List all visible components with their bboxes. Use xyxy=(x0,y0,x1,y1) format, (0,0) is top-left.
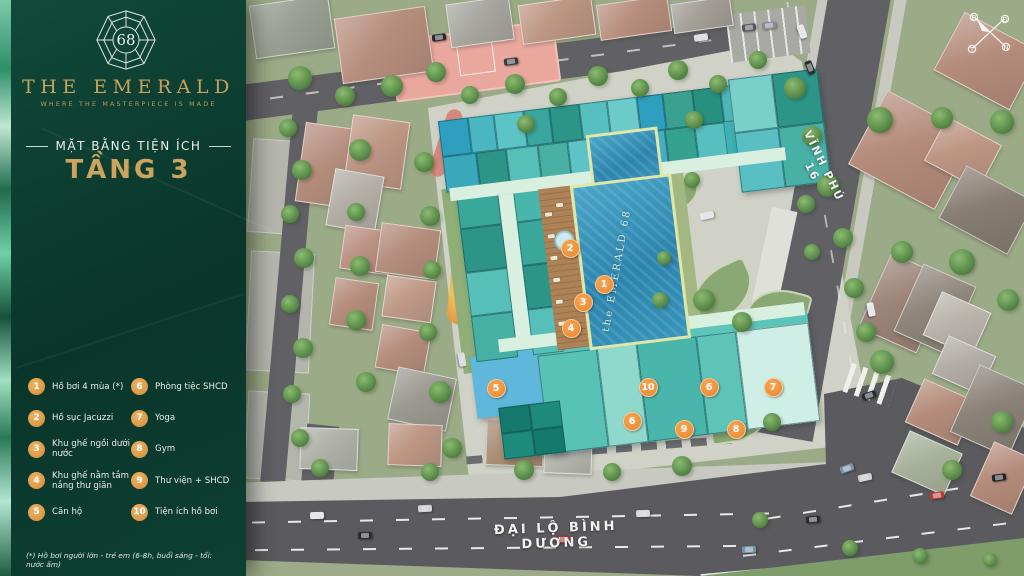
apartment-unit xyxy=(438,118,472,157)
tree xyxy=(505,74,525,94)
tree xyxy=(283,385,301,403)
legend-item-label: Yoga xyxy=(155,413,175,423)
tree xyxy=(291,429,309,447)
legend-item-number: 6 xyxy=(131,378,148,395)
legend-item: 8Gym xyxy=(131,441,241,458)
tree xyxy=(891,241,913,263)
tree xyxy=(912,548,928,564)
tree xyxy=(684,172,700,188)
tree xyxy=(279,119,297,137)
tree xyxy=(709,75,727,93)
tree xyxy=(549,88,567,106)
house-roof xyxy=(325,168,384,234)
building-complex xyxy=(430,50,864,467)
tree xyxy=(833,228,853,248)
legend-item-label: Tiện ích hồ bơi xyxy=(155,507,218,517)
legend-item-label: Căn hộ xyxy=(52,507,82,517)
legend-item-label: Phòng tiệc SHCD xyxy=(155,382,228,392)
lounge-chair xyxy=(556,203,563,208)
svg-text:B: B xyxy=(972,14,977,22)
legend-item-number: 5 xyxy=(28,504,45,521)
tree xyxy=(442,438,462,458)
tree xyxy=(668,60,688,80)
tree xyxy=(657,251,671,265)
tree xyxy=(652,292,668,308)
legend-item: 2Hồ sục Jacuzzi xyxy=(28,410,130,427)
brochure-page: the EMERALD 68 ĐẠI LỘ BÌNH DƯƠNG VĨNH PH… xyxy=(0,0,1024,576)
legend-item-label: Hồ sục Jacuzzi xyxy=(52,413,113,423)
divider-line xyxy=(209,146,231,147)
lounge-chair xyxy=(553,278,560,283)
legend-item-label: Khu ghế ngồi dưới nước xyxy=(52,439,130,460)
house-roof xyxy=(381,275,436,324)
tree xyxy=(293,338,313,358)
svg-text:N: N xyxy=(1003,44,1008,52)
tree xyxy=(429,381,451,403)
compass-icon: B Đ T N xyxy=(958,4,1024,64)
map-marker: 8 xyxy=(727,420,746,439)
tree xyxy=(381,75,403,97)
map-marker: 3 xyxy=(574,293,593,312)
svg-text:Đ: Đ xyxy=(1002,16,1008,24)
diamond-logo-icon: 68 xyxy=(95,9,157,71)
tree xyxy=(419,323,437,341)
tree xyxy=(414,152,434,172)
legend-item-label: Khu ghế nằm tắm nắng thư giãn xyxy=(52,471,130,492)
tree xyxy=(292,160,312,180)
tree xyxy=(870,350,894,374)
lounge-chair xyxy=(548,234,555,239)
apartment-unit xyxy=(728,74,778,133)
legend-item-number: 2 xyxy=(28,410,45,427)
legend-item-number: 3 xyxy=(28,441,45,458)
legend-item-number: 8 xyxy=(131,441,148,458)
tree xyxy=(294,248,314,268)
legend-item-number: 7 xyxy=(131,410,148,427)
tree xyxy=(288,66,312,90)
tree xyxy=(693,289,715,311)
tree xyxy=(356,372,376,392)
tree xyxy=(749,51,767,69)
car xyxy=(806,515,821,523)
tree xyxy=(990,110,1014,134)
tree xyxy=(867,107,893,133)
brand-tagline: WHERE THE MASTERPIECE IS MADE xyxy=(11,101,246,108)
tree xyxy=(685,111,703,129)
tree xyxy=(763,413,781,431)
tree xyxy=(347,203,365,221)
legend-item-number: 4 xyxy=(28,472,45,489)
legend-item-label: Gym xyxy=(155,444,175,454)
car xyxy=(358,532,372,539)
legend-item: 3Khu ghế ngồi dưới nước xyxy=(28,439,130,460)
apartment-unit xyxy=(736,323,821,430)
apartment-unit xyxy=(529,400,563,430)
tree xyxy=(349,139,371,161)
legend-item-label: Thư viện + SHCD xyxy=(155,476,229,486)
legend-column-1: 1Hồ bơi 4 mùa (*)2Hồ sục Jacuzzi3Khu ghế… xyxy=(28,371,130,528)
map-marker: 9 xyxy=(675,420,694,439)
map-marker: 2 xyxy=(561,239,580,258)
map-marker: 6 xyxy=(700,378,719,397)
tree xyxy=(281,295,299,313)
lounge-chair xyxy=(550,256,557,261)
tree xyxy=(421,463,439,481)
logo-number: 68 xyxy=(117,31,136,49)
tree xyxy=(603,463,621,481)
tree xyxy=(461,86,479,104)
car xyxy=(636,510,650,517)
info-panel: 68 THE EMERALD WHERE THE MASTERPIECE IS … xyxy=(0,0,246,576)
brand-name: THE EMERALD xyxy=(11,76,246,98)
tree xyxy=(672,456,692,476)
tree xyxy=(420,206,440,226)
tree xyxy=(281,205,299,223)
lounge-chair xyxy=(556,299,563,304)
map-marker: 10 xyxy=(639,378,658,397)
tree xyxy=(732,312,752,332)
svg-text:T: T xyxy=(969,46,975,54)
tree xyxy=(514,460,534,480)
legend-item-number: 9 xyxy=(131,472,148,489)
map-marker: 4 xyxy=(562,319,581,338)
tree xyxy=(842,540,858,556)
car xyxy=(418,505,432,513)
tree xyxy=(346,310,366,330)
legend-item-label: Hồ bơi 4 mùa (*) xyxy=(52,382,123,392)
subtitle-row: MẶT BẰNG TIỆN ÍCH xyxy=(11,139,246,153)
tree xyxy=(844,278,864,298)
street-label-dai-lo-binh-duong: ĐẠI LỘ BÌNH DƯƠNG xyxy=(476,518,637,554)
legend-item: 7Yoga xyxy=(131,410,241,427)
house-roof xyxy=(334,6,434,84)
page-subtitle: MẶT BẰNG TIỆN ÍCH xyxy=(56,139,202,153)
legend-item-number: 10 xyxy=(131,504,148,521)
apartment-unit xyxy=(549,104,583,143)
car xyxy=(742,546,756,554)
apartment-unit xyxy=(460,224,507,273)
map-marker: 1 xyxy=(595,275,614,294)
tree xyxy=(997,289,1019,311)
divider-line xyxy=(26,146,48,147)
legend-item: 6Phòng tiệc SHCD xyxy=(131,378,241,395)
tree xyxy=(797,195,815,213)
legend-item: 1Hồ bơi 4 mùa (*) xyxy=(28,378,130,395)
legend-item: 9Thư viện + SHCD xyxy=(131,472,241,489)
tree xyxy=(784,77,806,99)
car xyxy=(310,512,324,519)
tree xyxy=(931,107,953,129)
tree xyxy=(804,244,820,260)
legend-item: 10Tiện ích hồ bơi xyxy=(131,504,241,521)
tree xyxy=(517,115,535,133)
tree xyxy=(631,79,649,97)
tree xyxy=(335,86,355,106)
tree xyxy=(311,459,329,477)
house-roof xyxy=(387,423,442,467)
legend-item: 5Căn hộ xyxy=(28,504,130,521)
tree xyxy=(983,553,997,567)
apartment-unit xyxy=(532,426,566,456)
tree xyxy=(949,249,975,275)
tree xyxy=(942,460,962,480)
legend-column-2: 6Phòng tiệc SHCD7Yoga8Gym9Thư viện + SHC… xyxy=(131,371,241,528)
footnote: (*) Hồ bơi người lớn - trẻ em (6-8h, buổ… xyxy=(26,551,231,569)
map-marker: 7 xyxy=(764,378,783,397)
legend-item-number: 1 xyxy=(28,378,45,395)
tree xyxy=(991,411,1013,433)
tree xyxy=(856,322,876,342)
tree xyxy=(752,512,768,528)
apartment-unit xyxy=(466,268,513,317)
floor-title: TẦNG 3 xyxy=(11,155,246,185)
lounge-chair xyxy=(545,212,552,217)
tree xyxy=(350,256,370,276)
emerald-crystal-strip xyxy=(0,0,11,576)
apartment-unit xyxy=(501,430,535,460)
legend-item: 4Khu ghế nằm tắm nắng thư giãn xyxy=(28,471,130,492)
map-marker: 6 xyxy=(623,412,642,431)
tree xyxy=(426,62,446,82)
map-marker: 5 xyxy=(487,379,506,398)
tree xyxy=(423,261,441,279)
apartment-unit xyxy=(498,404,532,434)
tree xyxy=(588,66,608,86)
